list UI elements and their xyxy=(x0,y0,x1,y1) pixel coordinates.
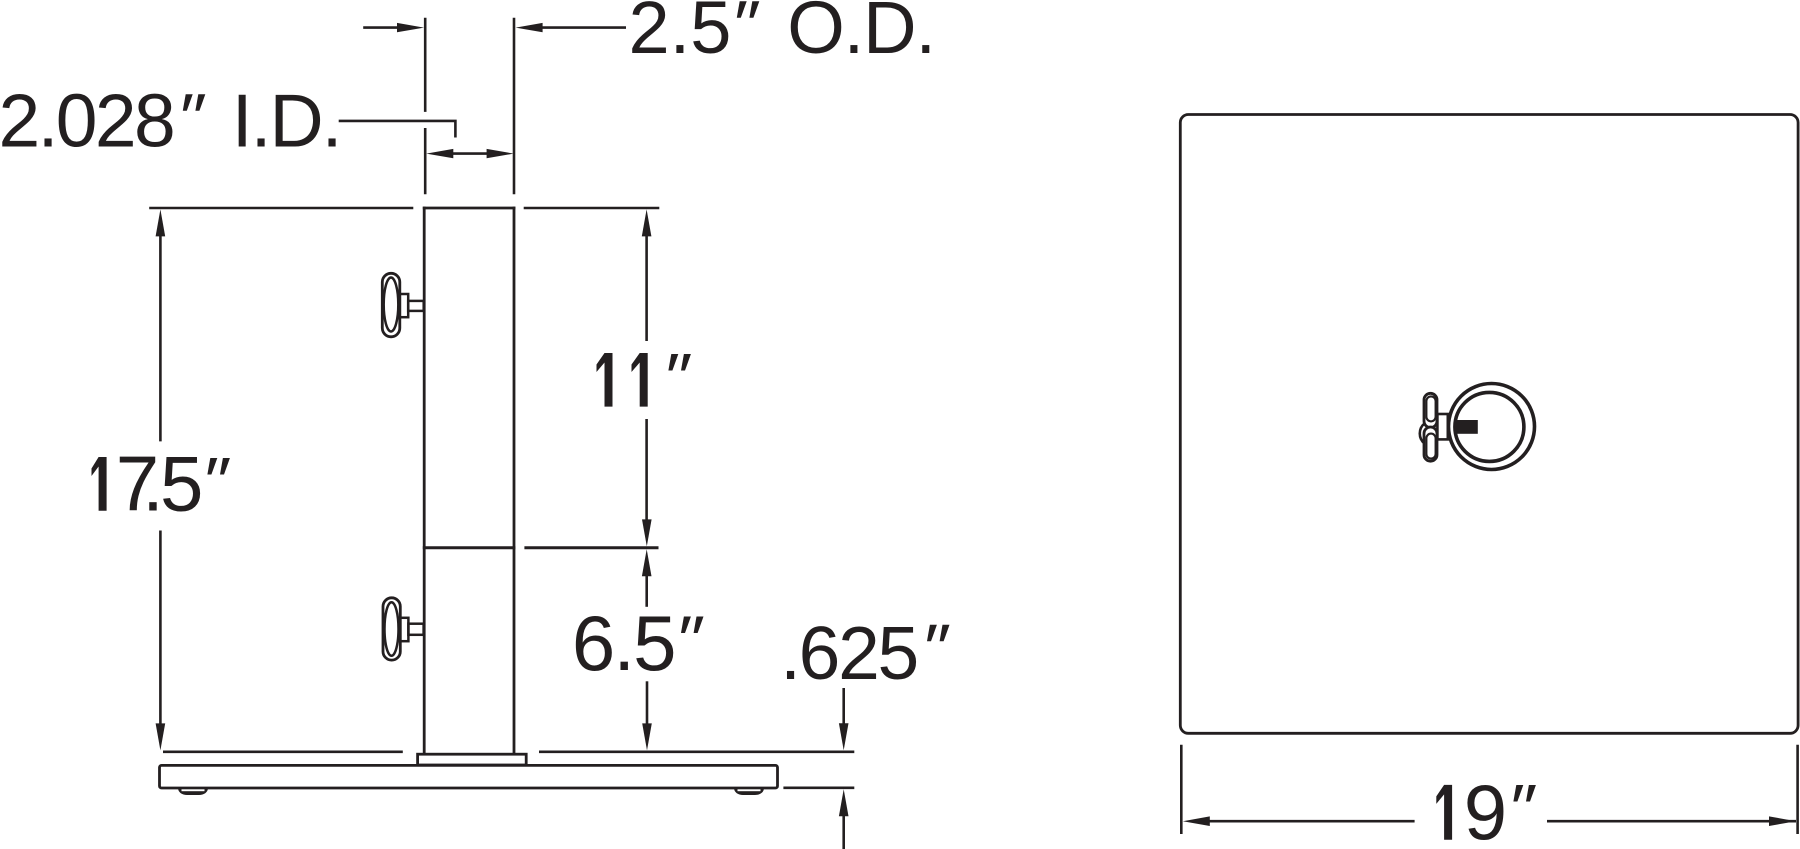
svg-text:5: 5 xyxy=(160,440,203,528)
svg-text:2.5: 2.5 xyxy=(629,0,732,69)
svg-text:9: 9 xyxy=(1464,768,1507,849)
svg-text:I.D.: I.D. xyxy=(232,79,341,163)
svg-text:6.5: 6.5 xyxy=(572,599,675,687)
svg-text:.625: .625 xyxy=(780,611,917,695)
svg-text:O.D.: O.D. xyxy=(787,0,935,69)
svg-text:2.028: 2.028 xyxy=(0,79,173,163)
